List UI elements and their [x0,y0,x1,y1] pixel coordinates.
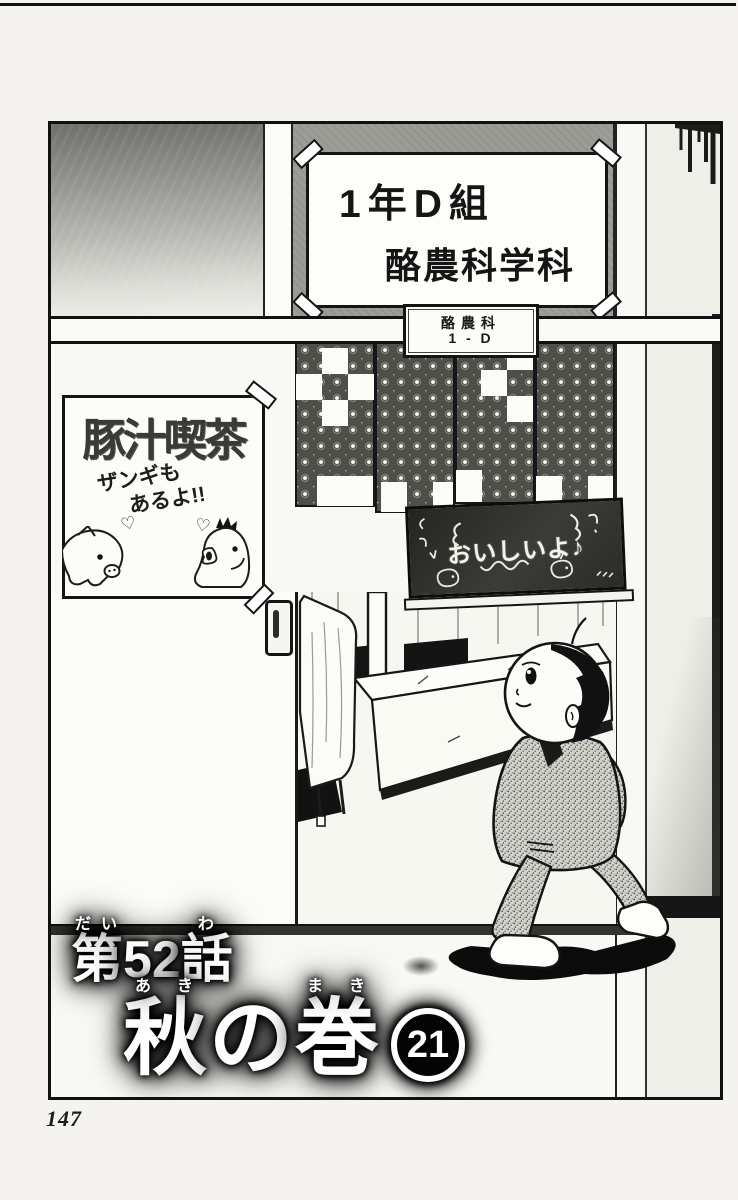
noren-checker [507,396,533,422]
volume-char: 秋 [123,991,207,1085]
noren-checker [348,374,374,400]
cast-shadow [449,934,676,980]
class-sign-line2: 酪農科学科 [385,237,575,289]
volume-char: の [209,991,293,1085]
door-frame-upper [265,124,293,316]
noren-panel [295,341,375,507]
shaded-wall [51,124,265,316]
door-handle [265,600,293,656]
noren-panel [455,341,535,504]
volume-title: 秋あきの巻まき21 [123,978,465,1092]
class-door-plate: 酪農科 1 - D [403,304,539,358]
noren-checker [322,348,348,374]
class-sign-line1: 1年D組 [339,173,495,229]
door-plate-line2: 1 - D [448,331,493,346]
cafe-sign-title: 豚汁喫茶 [66,404,261,468]
slipper [618,902,668,938]
noren-panel [535,341,615,513]
hair-antenna [572,618,586,644]
noren-checker [296,374,322,400]
chick-doodle-icon [191,516,255,592]
circled-volume-number: 21 [391,1008,465,1082]
walking-boy [435,604,715,999]
eye [526,668,537,685]
noren-checker [381,482,407,512]
chapter-char: 第 [71,931,123,989]
noren-checker [317,476,373,506]
page-top-rule [0,3,736,6]
chapter-title: 第だい52話わ [71,916,233,986]
slipper [489,935,559,968]
sliding-door [51,592,298,926]
volume-char: 巻 [295,991,379,1085]
lintel-beam [51,316,720,344]
noren-panel [375,341,455,513]
noren-checker [456,470,482,502]
page-number: 147 [46,1106,82,1132]
cafe-sign: 豚汁喫茶 ザンギも あるよ!! ♡ ♡ [62,395,265,599]
door-handle-slot [273,610,279,638]
ink-drips-icon [647,124,720,194]
noren-curtains [295,341,615,513]
noren-checker [322,400,348,426]
noren-checker [481,370,507,396]
chalkboard-group: おいしいよ♪ [405,498,625,609]
chalk-doodles-icon [408,501,623,596]
door-plate-line1: 酪農科 [441,315,501,331]
chalkboard: おいしいよ♪ [405,497,627,598]
door-post [368,592,386,678]
pig-doodle-icon [62,526,132,592]
manga-panel: 1年D組 酪農科学科 酪農科 1 - D [48,121,723,1100]
classroom-sign: 1年D組 酪農科学科 [306,152,608,308]
